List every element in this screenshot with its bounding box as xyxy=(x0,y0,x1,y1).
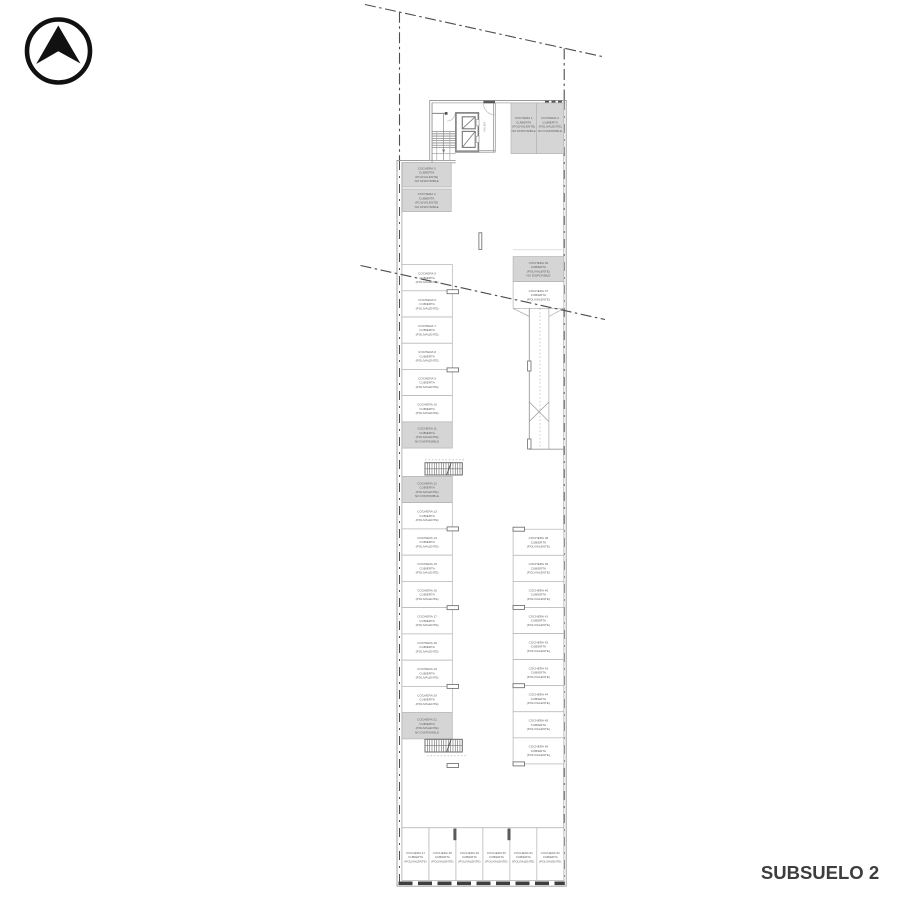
svg-text:(POLIVALENTE): (POLIVALENTE) xyxy=(527,753,550,757)
svg-text:(POLIVALENTE): (POLIVALENTE) xyxy=(485,859,507,863)
svg-text:(POLIVALENTE): (POLIVALENTE) xyxy=(527,297,550,301)
svg-text:PALIER: PALIER xyxy=(483,121,487,131)
svg-text:NO DISPONIBLE: NO DISPONIBLE xyxy=(526,274,550,278)
svg-text:(POLIVALENTE): (POLIVALENTE) xyxy=(416,518,439,522)
svg-text:(POLIVALENTE): (POLIVALENTE) xyxy=(416,411,439,415)
svg-text:(POLIVALENTE): (POLIVALENTE) xyxy=(416,676,439,680)
svg-text:(POLIVALENTE): (POLIVALENTE) xyxy=(431,859,453,863)
svg-text:(POLIVALENTE): (POLIVALENTE) xyxy=(416,623,439,627)
svg-text:(POLIVALENTE): (POLIVALENTE) xyxy=(404,859,426,863)
svg-text:(POLIVALENTE): (POLIVALENTE) xyxy=(527,701,550,705)
svg-text:(POLIVALENTE): (POLIVALENTE) xyxy=(416,359,439,363)
svg-text:NO DISPONIBLE: NO DISPONIBLE xyxy=(415,494,439,498)
svg-text:NO DISPONIBLE: NO DISPONIBLE xyxy=(415,439,439,443)
svg-text:(POLIVALENTE): (POLIVALENTE) xyxy=(416,332,439,336)
svg-text:(POLIVALENTE): (POLIVALENTE) xyxy=(512,859,534,863)
svg-text:(POLIVALENTE): (POLIVALENTE) xyxy=(458,859,480,863)
svg-text:(POLIVALENTE): (POLIVALENTE) xyxy=(539,859,561,863)
svg-text:(POLIVALENTE): (POLIVALENTE) xyxy=(416,649,439,653)
svg-text:NO DISPONIBLE: NO DISPONIBLE xyxy=(538,129,562,133)
svg-text:(POLIVALENTE): (POLIVALENTE) xyxy=(527,649,550,653)
svg-text:NO DISPONIBLE: NO DISPONIBLE xyxy=(415,205,439,209)
svg-text:(POLIVALENTE): (POLIVALENTE) xyxy=(416,385,439,389)
svg-text:(POLIVALENTE): (POLIVALENTE) xyxy=(527,727,550,731)
svg-text:NO DISPONIBLE: NO DISPONIBLE xyxy=(512,129,536,133)
svg-text:(POLIVALENTE): (POLIVALENTE) xyxy=(416,571,439,575)
svg-text:(POLIVALENTE): (POLIVALENTE) xyxy=(416,544,439,548)
svg-text:(POLIVALENTE): (POLIVALENTE) xyxy=(527,675,550,679)
svg-text:NO DISPONIBLE: NO DISPONIBLE xyxy=(415,730,439,734)
svg-text:(POLIVALENTE): (POLIVALENTE) xyxy=(527,623,550,627)
svg-text:(POLIVALENTE): (POLIVALENTE) xyxy=(527,597,550,601)
svg-text:SUBSUELO 2: SUBSUELO 2 xyxy=(761,862,879,883)
svg-text:NO DISPONIBLE: NO DISPONIBLE xyxy=(415,179,439,183)
svg-text:(POLIVALENTE): (POLIVALENTE) xyxy=(527,545,550,549)
svg-text:(POLIVALENTE): (POLIVALENTE) xyxy=(527,571,550,575)
svg-text:(POLIVALENTE): (POLIVALENTE) xyxy=(416,702,439,706)
svg-text:(POLIVALENTE): (POLIVALENTE) xyxy=(416,306,439,310)
svg-text:(POLIVALENTE): (POLIVALENTE) xyxy=(416,597,439,601)
